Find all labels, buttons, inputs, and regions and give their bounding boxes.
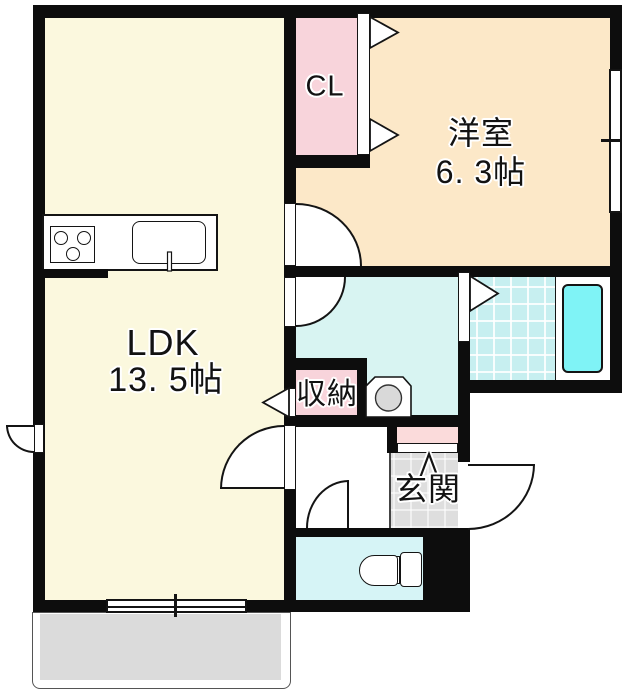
bathtub-icon: [562, 284, 603, 373]
stove-burner-3: [66, 247, 80, 261]
balcony: [32, 612, 291, 689]
wall-center-5: [284, 490, 296, 612]
storage-door-jamb: [284, 388, 296, 417]
shoe-cabinet-counter: [397, 443, 458, 453]
closet-door-track: [357, 13, 370, 155]
ldk-size-label: 13. 5帖: [108, 363, 224, 397]
ldk-label: LDK: [126, 325, 199, 361]
wall-washroom-bottom: [284, 415, 470, 427]
hall-door-jamb: [284, 425, 296, 490]
closet-label: CL: [305, 73, 344, 102]
storage-label: 収納: [296, 380, 358, 410]
wall-shoebox-left: [387, 425, 397, 453]
toilet-tank: [400, 552, 422, 587]
wall-bath-bottom: [458, 380, 622, 393]
room-bathroom: [470, 277, 555, 380]
western-door-jamb: [284, 203, 296, 266]
stove-burner-2: [77, 231, 91, 245]
washroom-door-jamb: [284, 277, 296, 327]
wall-corner-block: [423, 530, 470, 612]
toilet-icon: [359, 555, 398, 586]
balcony-floor: [40, 614, 281, 680]
entrance-label: 玄関: [395, 473, 461, 505]
wall-closet-bottom: [284, 155, 370, 168]
left-wall-window-swing: [6, 425, 34, 453]
room-ldk: [45, 18, 284, 600]
wall-storage-top: [284, 358, 367, 370]
wall-bath-left: [458, 340, 470, 462]
wall-top: [33, 5, 622, 18]
western-window-tick: [601, 139, 622, 142]
wall-center-1: [284, 5, 296, 203]
bathroom-door-track: [458, 272, 470, 342]
entrance-edge-line: [389, 453, 391, 528]
wall-western-bottom: [284, 266, 622, 277]
sink-icon: [132, 221, 206, 264]
wall-left: [33, 5, 45, 612]
wall-storage-right: [357, 358, 367, 417]
entry-door: [468, 464, 535, 530]
left-window-jamb: [34, 424, 44, 453]
shoe-cabinet: [397, 427, 458, 443]
kitchen-stub-wall: [42, 269, 108, 278]
western-room-size-label: 6. 3帖: [436, 156, 526, 188]
wall-bottom: [33, 600, 470, 612]
floor-plan: LDK 13. 5帖 洋室 6. 3帖 CL 収納 玄関: [0, 0, 628, 691]
western-room-label: 洋室: [448, 117, 514, 149]
stove-burner-1: [54, 231, 68, 245]
sliding-window-tick: [174, 594, 177, 617]
